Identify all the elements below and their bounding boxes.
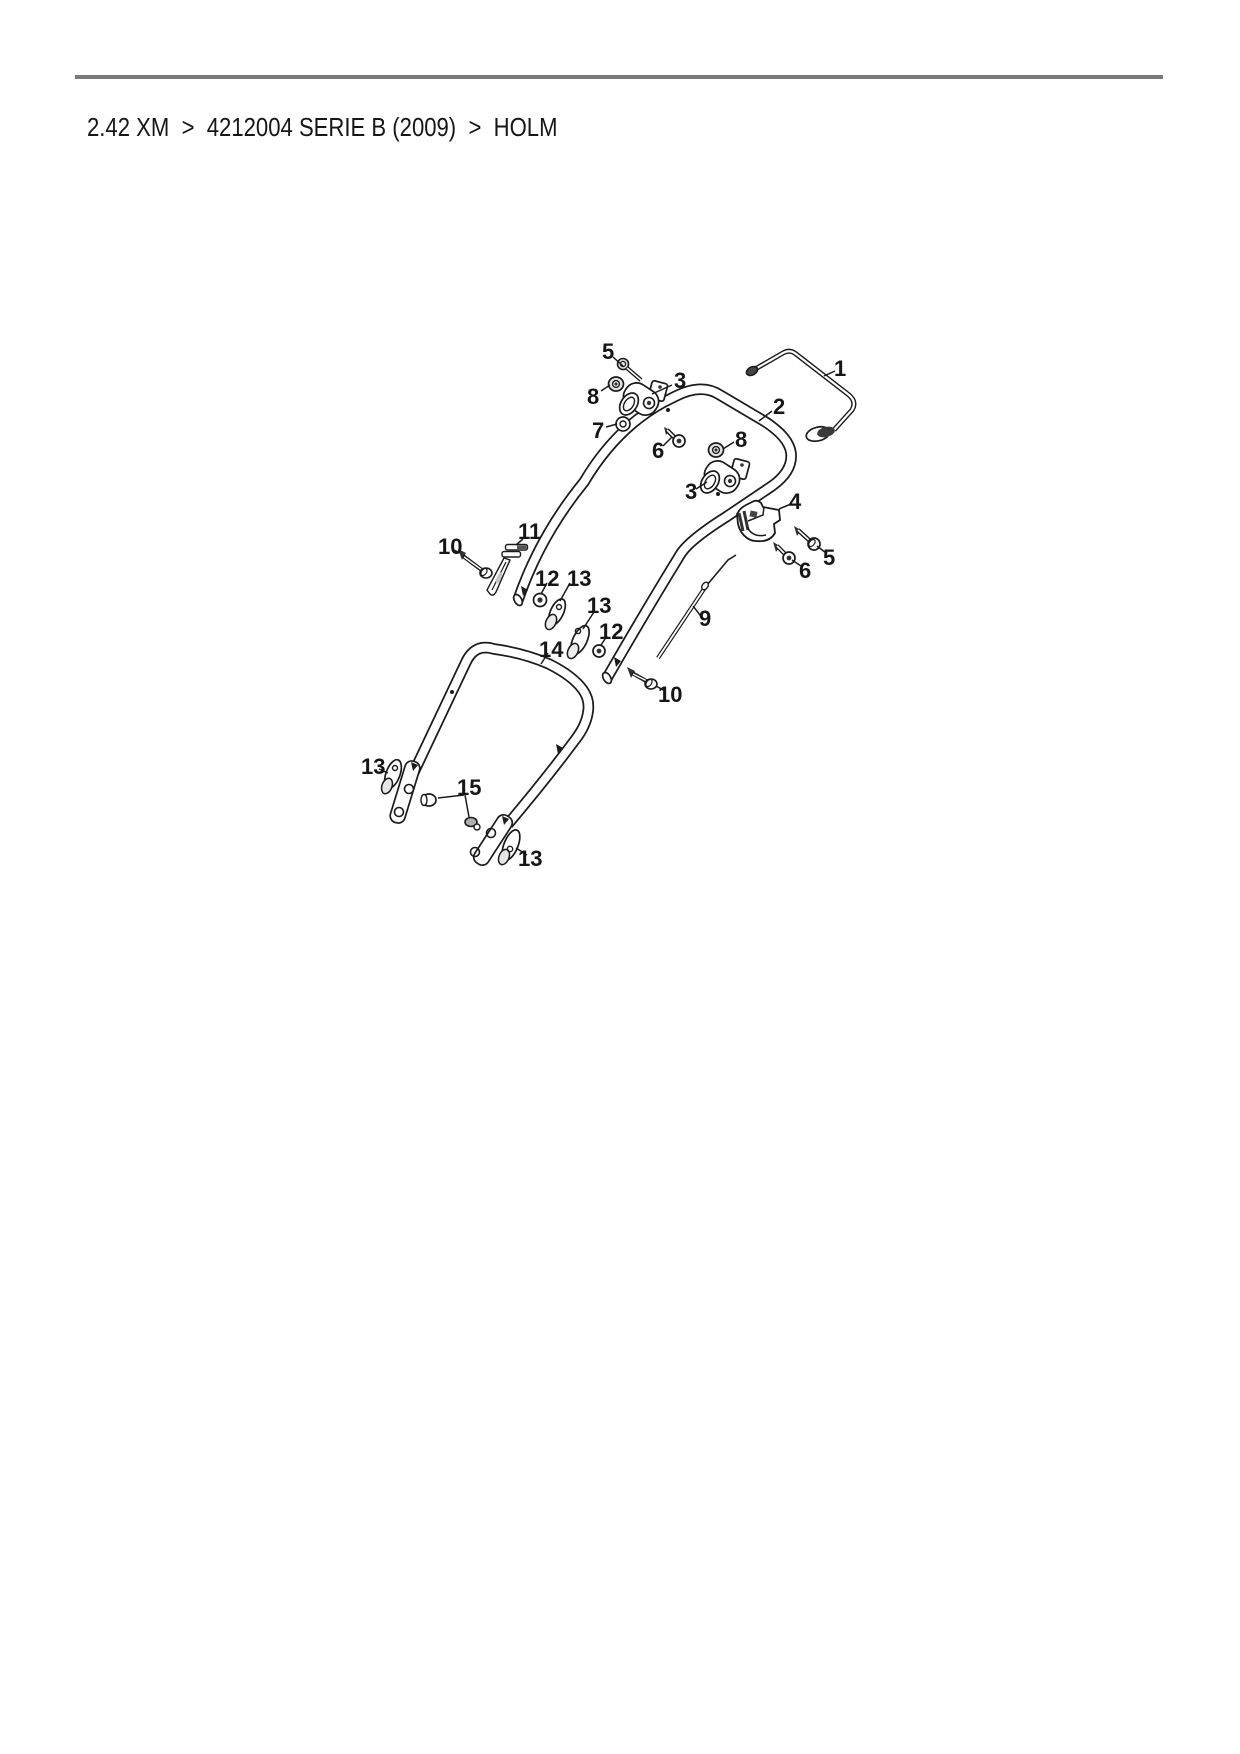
svg-text:6: 6 (799, 558, 811, 583)
svg-text:8: 8 (735, 427, 747, 452)
svg-text:13: 13 (361, 754, 385, 779)
svg-text:3: 3 (685, 479, 697, 504)
svg-text:15: 15 (457, 775, 481, 800)
svg-text:9: 9 (699, 606, 711, 631)
svg-text:12: 12 (599, 619, 623, 644)
svg-text:3: 3 (674, 368, 686, 393)
svg-text:12: 12 (535, 566, 559, 591)
svg-text:1: 1 (834, 356, 846, 381)
svg-text:13: 13 (587, 593, 611, 618)
svg-text:4: 4 (789, 489, 802, 514)
svg-text:13: 13 (518, 846, 542, 871)
svg-text:8: 8 (587, 384, 599, 409)
svg-text:10: 10 (438, 534, 462, 559)
svg-text:11: 11 (518, 519, 541, 544)
svg-text:5: 5 (602, 339, 614, 364)
svg-text:13: 13 (567, 566, 591, 591)
svg-text:2: 2 (773, 394, 785, 419)
svg-text:10: 10 (658, 682, 682, 707)
svg-text:14: 14 (539, 637, 564, 662)
svg-text:5: 5 (823, 545, 835, 570)
svg-text:7: 7 (592, 418, 604, 443)
svg-text:6: 6 (652, 438, 664, 463)
